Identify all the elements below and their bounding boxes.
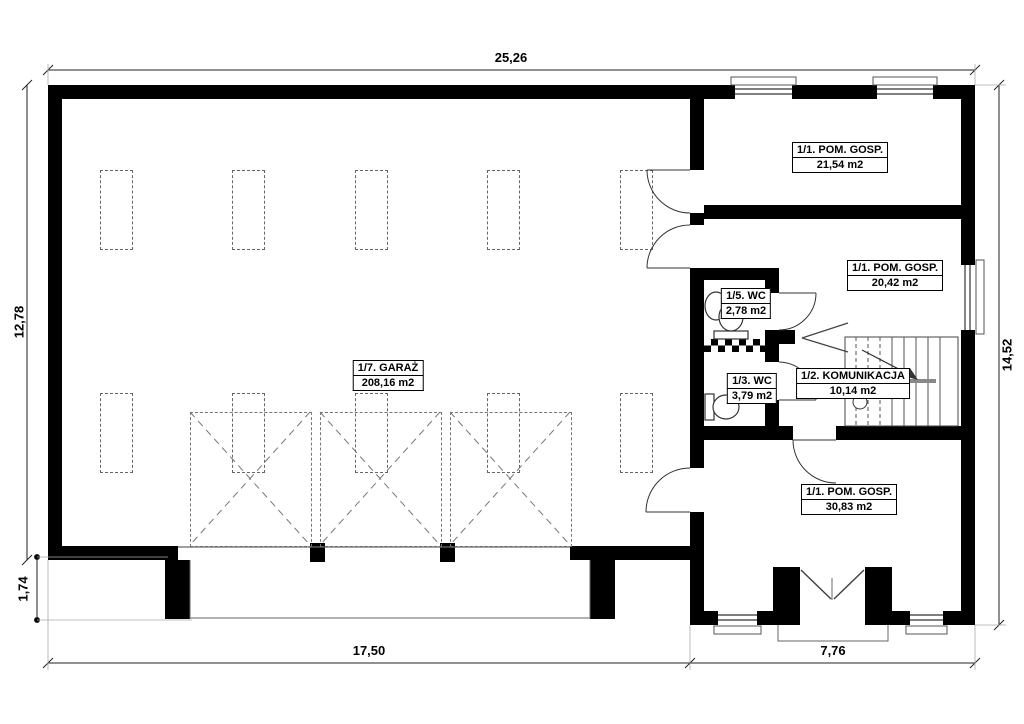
room-area: 208,16 m2 (353, 376, 424, 391)
apron-stub-right (590, 560, 615, 619)
wall-divider-a (690, 85, 704, 170)
wall-bottom-d (943, 611, 975, 625)
room-name: 1/1. POM. GOSP. (801, 484, 897, 500)
wall-right-lower (961, 330, 975, 625)
room-label-garaz: 1/7. GARAŻ 208,16 m2 (353, 360, 424, 391)
roof-projection (232, 170, 265, 250)
dimension-top-width: 25,26 (495, 50, 528, 65)
wall-garage-bottom-right (570, 546, 690, 560)
room-area: 2,78 m2 (721, 304, 771, 319)
room-name: 1/1. POM. GOSP. (847, 260, 943, 276)
wall-divider-c (690, 268, 704, 468)
room-label-pom-gosp-bottom: 1/1. POM. GOSP. 30,83 m2 (801, 484, 897, 515)
room-label-pom-gosp-top: 1/1. POM. GOSP. 21,54 m2 (792, 142, 888, 173)
wall-top-left (48, 85, 735, 99)
roof-projection (487, 170, 520, 250)
room-area: 20,42 m2 (847, 276, 943, 291)
dimension-bottom-right: 7,76 (820, 643, 845, 658)
wall-room-bottom-north-a (704, 426, 793, 440)
apron-stub-left (165, 560, 190, 619)
roof-projection (355, 170, 388, 250)
floor-plan: 1/7. GARAŻ 208,16 m2 1/1. POM. GOSP. 21,… (0, 0, 1024, 724)
room-name: 1/7. GARAŻ (353, 360, 424, 376)
roof-projection (100, 170, 133, 250)
room-name: 1/2. KOMUNIKACJA (796, 368, 910, 384)
room-name: 1/1. POM. GOSP. (792, 142, 888, 158)
room-area: 3,79 m2 (727, 389, 777, 404)
room-label-komunikacja: 1/2. KOMUNIKACJA 10,14 m2 (796, 368, 910, 399)
room-name: 1/5. WC (721, 288, 771, 304)
garage-gate-1 (190, 412, 312, 547)
wall-room-bottom-north-b (836, 426, 961, 440)
entrance-stub-left (773, 567, 800, 625)
room-label-wc-3: 1/3. WC 3,79 m2 (727, 373, 777, 404)
room-area: 10,14 m2 (796, 384, 910, 399)
entrance-stub-right (865, 567, 892, 625)
entrance-double-door (801, 570, 864, 600)
wall-right-upper (961, 85, 975, 265)
dimension-left-height: 12,78 (12, 306, 27, 339)
entrance-porch-outline (778, 625, 888, 641)
roof-projection (100, 393, 133, 473)
room-label-wc-5: 1/5. WC 2,78 m2 (721, 288, 771, 319)
roof-projection (620, 393, 653, 473)
wall-left (48, 85, 62, 560)
dimension-right-height: 14,52 (1000, 339, 1015, 372)
wall-divider-d (690, 512, 704, 625)
wall-room-top-south (704, 205, 961, 219)
wall-kom-north (779, 330, 795, 344)
dimension-bottom-left: 17,50 (353, 643, 386, 658)
room-area: 21,54 m2 (792, 158, 888, 173)
wall-bottom-b (757, 611, 773, 625)
komunikacja-double-door (802, 323, 848, 352)
driveway-apron-outline (190, 560, 590, 618)
wall-top-mid (792, 85, 877, 99)
wall-divider-b (690, 213, 704, 225)
garage-gate-3 (450, 412, 572, 547)
wall-between-wcs-hatched (704, 339, 765, 352)
wall-wc-east-b (765, 330, 779, 362)
wall-garage-bottom-left (48, 546, 178, 560)
room-area: 30,83 m2 (801, 500, 897, 515)
dimension-apron-depth: 1,74 (16, 576, 31, 601)
room-label-pom-gosp-mid: 1/1. POM. GOSP. 20,42 m2 (847, 260, 943, 291)
room-name: 1/3. WC (727, 373, 777, 389)
garage-gate-2 (320, 412, 442, 547)
wall-bottom-a (690, 611, 718, 625)
wall-bottom-c (892, 611, 910, 625)
roof-projection (620, 170, 653, 250)
